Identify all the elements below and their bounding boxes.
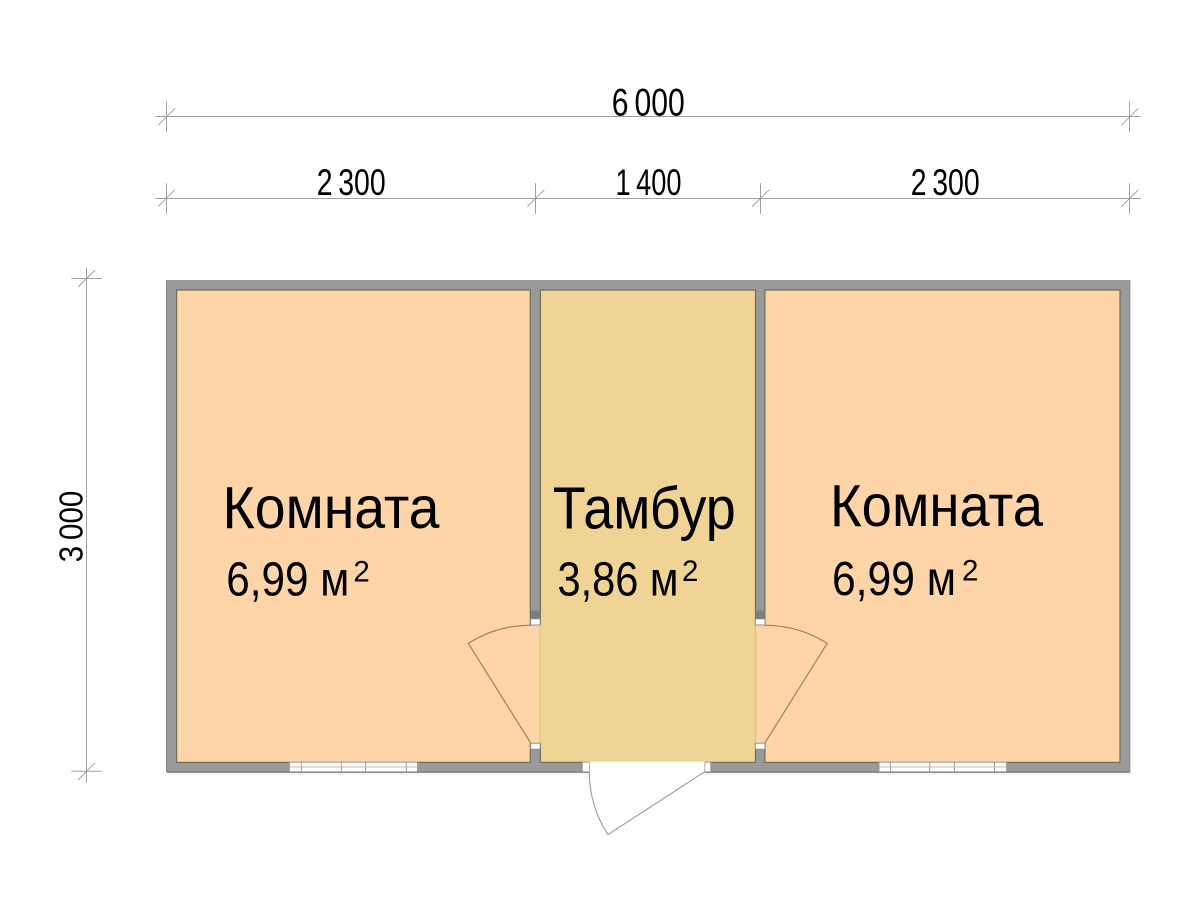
svg-text:2 300: 2 300 (317, 161, 386, 203)
svg-text:2: 2 (682, 555, 698, 588)
svg-text:Тамбур: Тамбур (553, 476, 736, 542)
svg-text:6,99 м: 6,99 м (832, 553, 956, 606)
svg-text:2: 2 (353, 556, 369, 589)
svg-text:Комната: Комната (223, 475, 440, 541)
svg-text:1 400: 1 400 (616, 161, 682, 203)
svg-text:3 000: 3 000 (53, 491, 90, 563)
svg-text:2 300: 2 300 (911, 161, 980, 203)
svg-text:2: 2 (962, 555, 978, 588)
svg-text:6 000: 6 000 (612, 82, 685, 125)
svg-text:3,86 м: 3,86 м (558, 553, 679, 606)
svg-text:Комната: Комната (830, 473, 1043, 539)
svg-text:6,99 м: 6,99 м (226, 554, 349, 607)
